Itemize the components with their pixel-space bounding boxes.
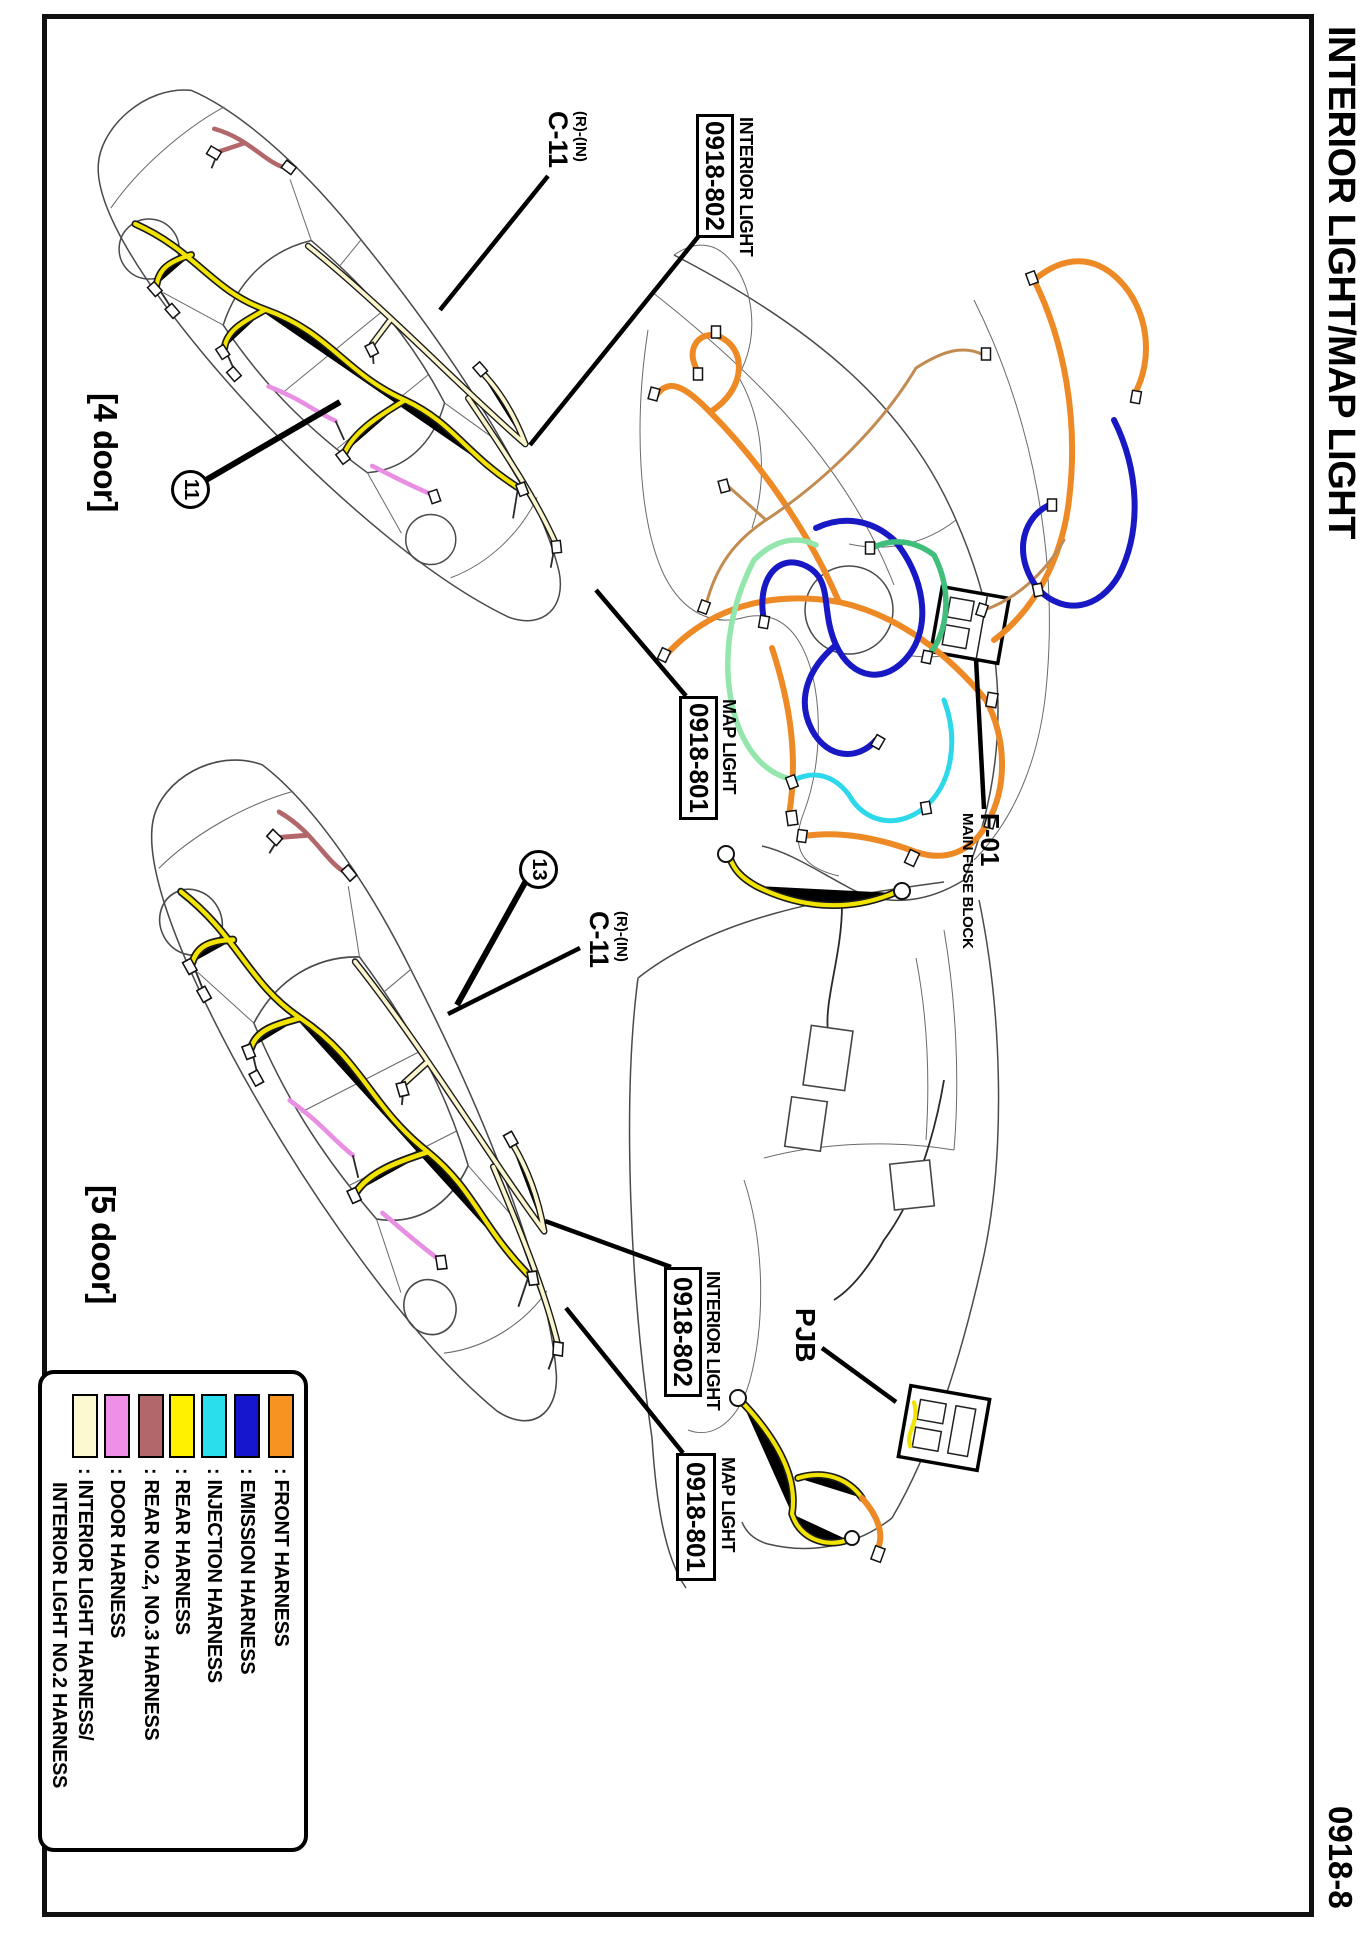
five-door-clip-number: 13 (519, 850, 558, 889)
legend-item-label: DOOR HARNESS (106, 1479, 128, 1638)
legend-colon: : (106, 1468, 128, 1474)
fuse-block-name: MAIN FUSE BLOCK (959, 813, 976, 949)
legend-row: : INTERIOR LIGHT HARNESS/ INTERIOR LIGHT… (46, 1394, 98, 1788)
four-door-interior-light-code: 0918-802 (696, 114, 734, 238)
legend-colon: : (171, 1468, 193, 1474)
legend-swatch-emission-harness (234, 1394, 260, 1458)
connector-code-label: C-11 (585, 911, 613, 968)
fuse-block-code: F-01 (975, 813, 1004, 949)
legend-colon: : (203, 1468, 225, 1474)
four-door-label: [4 door] (86, 393, 124, 512)
legend-row: : REAR NO.2, NO.3 HARNESS (138, 1394, 164, 1740)
page-title: INTERIOR LIGHT/MAP LIGHT (1319, 26, 1362, 539)
legend-row: : DOOR HARNESS (104, 1394, 130, 1638)
five-door-map-light-code: 0918-801 (676, 1453, 716, 1581)
legend-colon: : (236, 1468, 258, 1474)
harness-legend: : FRONT HARNESS : EMISSION HARNESS : INJ… (38, 1370, 308, 1852)
connector-position-label: (R)-(IN) (613, 911, 629, 968)
legend-row: : FRONT HARNESS (268, 1394, 294, 1646)
legend-item-label: REAR HARNESS (171, 1479, 193, 1634)
legend-item-label: FRONT HARNESS (270, 1479, 292, 1646)
connector-position-label: (R)-(IN) (572, 111, 588, 168)
legend-item-label: EMISSION HARNESS (236, 1479, 258, 1674)
four-door-interior-light-name: INTERIOR LIGHT (735, 117, 756, 256)
legend-swatch-rear-no2-no3-harness (138, 1394, 164, 1458)
pjb-label: PJB (789, 1308, 821, 1362)
legend-swatch-interior-light-harness (72, 1394, 98, 1458)
legend-colon: : (74, 1468, 96, 1474)
legend-row: : INJECTION HARNESS (201, 1394, 227, 1683)
legend-swatch-injection-harness (201, 1394, 227, 1458)
legend-item-label: INJECTION HARNESS (203, 1479, 225, 1682)
five-door-label: [5 door] (84, 1185, 122, 1304)
legend-swatch-door-harness (104, 1394, 130, 1458)
five-door-interior-light-code: 0918-802 (664, 1267, 702, 1397)
fuse-block-callout: F-01 MAIN FUSE BLOCK (959, 813, 1004, 949)
legend-swatch-rear-harness (169, 1394, 195, 1458)
five-door-car-drawing (101, 721, 640, 1464)
connector-code-label: C-11 (544, 111, 572, 168)
five-door-connector-callout: (R)-(IN) C-11 (585, 911, 629, 968)
legend-row: : REAR HARNESS (169, 1394, 195, 1635)
four-door-map-light-name: MAP LIGHT (718, 699, 739, 794)
five-door-interior-light-name: INTERIOR LIGHT (702, 1271, 723, 1410)
legend-row: : EMISSION HARNESS (234, 1394, 260, 1674)
legend-item-label: INTERIOR LIGHT HARNESS/ (74, 1479, 96, 1740)
four-door-clip-number: 11 (171, 470, 210, 509)
five-door-map-light-name: MAP LIGHT (717, 1457, 738, 1552)
legend-item-label-line2: INTERIOR LIGHT NO.2 HARNESS (48, 1482, 70, 1788)
legend-item-label: REAR NO.2, NO.3 HARNESS (140, 1479, 162, 1740)
four-door-connector-callout: (R)-(IN) C-11 (544, 111, 588, 168)
legend-colon: : (140, 1468, 162, 1474)
four-door-map-light-code: 0918-801 (679, 696, 718, 820)
page-number: 0918-8 (1321, 1806, 1359, 1909)
legend-colon: : (270, 1468, 292, 1474)
legend-swatch-front-harness (268, 1394, 294, 1458)
page-canvas: INTERIOR LIGHT/MAP LIGHT 0918-8 (0, 0, 1364, 1952)
